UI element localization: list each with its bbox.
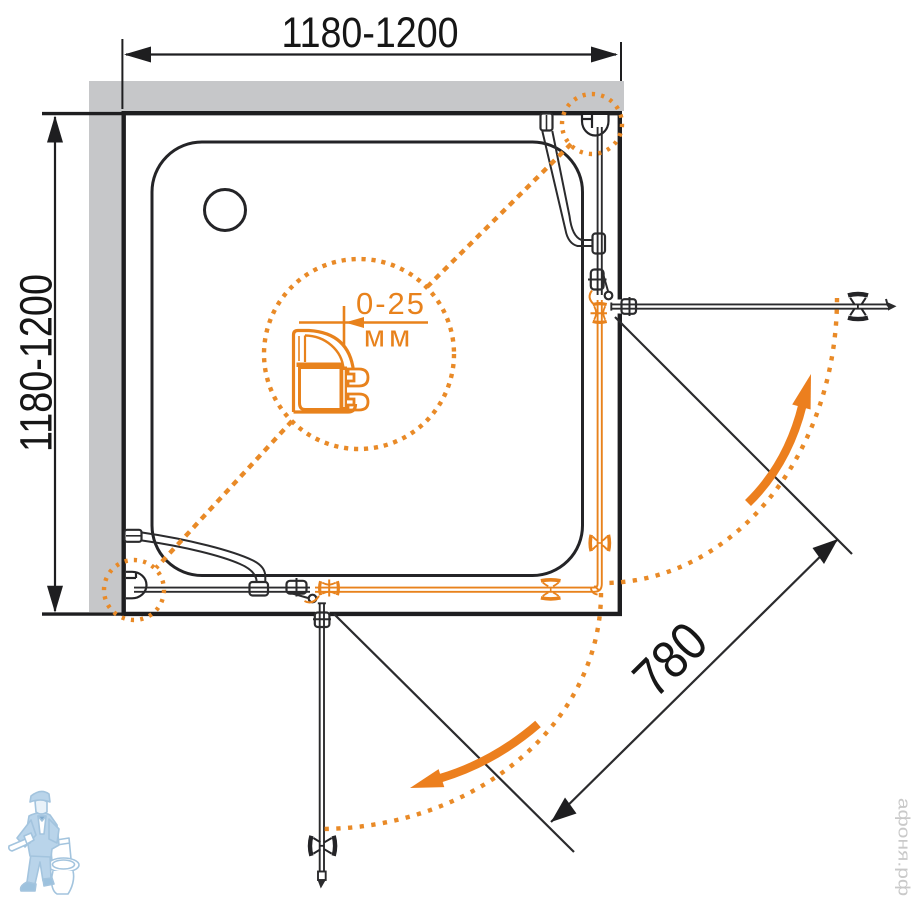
svg-text:0-25: 0-25 bbox=[356, 286, 426, 321]
svg-text:1180-1200: 1180-1200 bbox=[10, 274, 61, 452]
svg-text:афоня.рф: афоня.рф bbox=[895, 798, 913, 896]
svg-text:1180-1200: 1180-1200 bbox=[281, 8, 458, 57]
